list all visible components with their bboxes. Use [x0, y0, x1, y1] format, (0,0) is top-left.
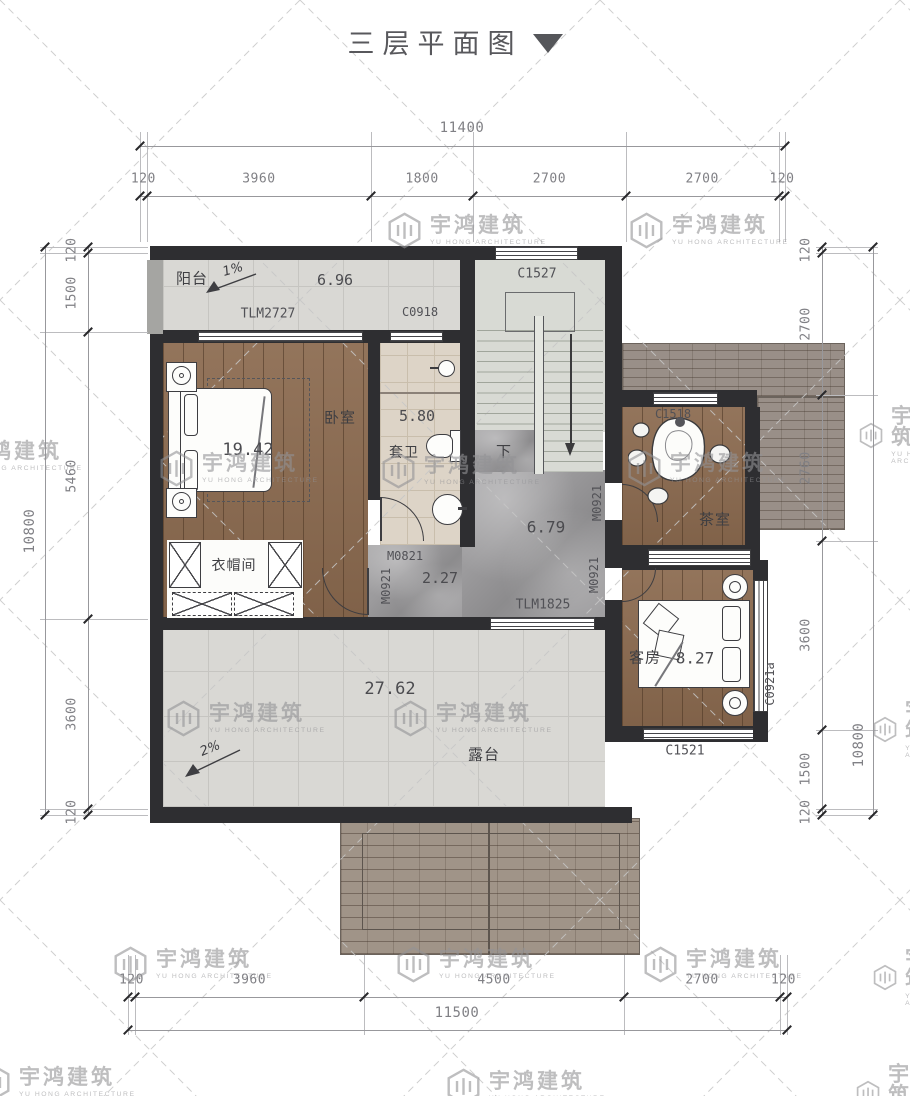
balcony-slope-arrow: 1%	[200, 264, 262, 298]
witness-line	[816, 253, 878, 254]
dim-segment-label: 120	[65, 799, 80, 824]
guest-room-area: 8.27	[676, 649, 715, 668]
dim-segment-label: 4500	[477, 973, 510, 988]
c1518-label: C1518	[655, 407, 691, 421]
witness-line	[816, 730, 878, 731]
watermark-en: YU HONG ARCHITECTURE	[430, 239, 546, 246]
dim-segment-label: 120	[799, 799, 814, 824]
dim-segment-label: 1500	[65, 276, 80, 309]
cloakroom-label: 衣帽间	[212, 555, 257, 575]
nightstand-lamp-2-dot	[179, 499, 184, 504]
bedroom-label: 卧室	[324, 407, 356, 428]
tea-table-set	[628, 410, 738, 510]
wall-guest-right-bottom	[753, 712, 768, 742]
witness-line	[40, 247, 148, 248]
terrace-slope-arrow: 2%	[178, 740, 248, 782]
c0921a-label: C0921a	[763, 662, 777, 705]
tlm1825-label: TLM1825	[516, 598, 571, 613]
door-tlm2727	[198, 331, 363, 342]
witness-line	[147, 132, 148, 242]
dim-segment-label: 2700	[686, 172, 719, 187]
bedroom-door-leaf	[367, 568, 369, 615]
balcony-area: 6.96	[317, 271, 353, 289]
corridor-area: 2.27	[422, 569, 458, 587]
witness-line	[473, 132, 474, 242]
wall-bedroom-bottom-right	[595, 617, 622, 630]
roof-right-top	[622, 343, 845, 397]
watermark: 宇鸿建筑 YU HONG ARCHITECTURE	[858, 406, 910, 465]
dim-segment-label: 120	[770, 172, 795, 187]
guest-room-label: 客房	[629, 647, 661, 668]
dim-overall-label: 10800	[22, 509, 38, 554]
dim-line	[140, 146, 785, 147]
dim-overall-label: 11400	[440, 120, 485, 136]
witness-line	[40, 332, 148, 333]
dim-segment-label: 5460	[65, 459, 80, 492]
dim-segment-label: 3600	[65, 697, 80, 730]
bedroom-area: 19.42	[222, 440, 273, 460]
dim-segment-label: 2700	[799, 308, 814, 341]
balcony-parapet	[147, 260, 163, 334]
dim-segment-label: 120	[119, 973, 144, 988]
dim-line	[128, 1030, 787, 1031]
watermark-cn: 宇鸿建筑	[905, 700, 910, 742]
triangle-down-icon	[533, 34, 563, 53]
watermark-cn: 宇鸿建筑	[430, 215, 546, 236]
watermark-cn: 宇鸿建筑	[156, 949, 272, 970]
ensuite-door-leaf	[380, 497, 382, 541]
watermark-cn: 宇鸿建筑	[891, 406, 910, 448]
watermark: 宇鸿建筑 YU HONG ARCHITECTURE	[445, 1068, 605, 1096]
dim-line	[128, 997, 787, 998]
wall-terrace-bottom	[150, 807, 632, 823]
watermark-en: YU HONG ARCHITECTURE	[905, 745, 910, 759]
shower-partition-line	[380, 392, 460, 394]
svg-text:2%: 2%	[198, 738, 223, 760]
window-c1521	[643, 728, 757, 740]
watermark-en: YU HONG ARCHITECTURE	[19, 1091, 135, 1096]
dim-line	[140, 196, 785, 197]
bed-headboard	[168, 386, 181, 494]
watermark-cn: 宇鸿建筑	[489, 1071, 605, 1092]
dim-segment-label: 3960	[242, 172, 275, 187]
hall-area: 6.79	[527, 518, 566, 537]
dim-overall-label: 11500	[435, 1005, 480, 1021]
watermark: 宇鸿建筑 YU HONG ARCHITECTURE	[386, 212, 546, 249]
roof-bottom-ridge	[362, 833, 620, 930]
dim-segment-label: 2760	[799, 451, 814, 484]
roof-bottom-ridge-line	[488, 818, 490, 955]
stairs-down-label: 下	[496, 441, 512, 462]
dim-segment-label: 3960	[233, 973, 266, 988]
watermark-cn: 宇鸿建筑	[672, 215, 788, 236]
dim-line	[45, 247, 46, 815]
terrace-label: 露台	[468, 744, 500, 765]
wardrobe-box-2	[268, 542, 302, 588]
dim-overall-label: 10800	[851, 723, 867, 768]
window-c0918	[390, 331, 443, 342]
guest-bed-pillow-2	[722, 647, 741, 682]
guest-stand-2-inner	[729, 697, 741, 709]
wall-left-upper	[150, 334, 163, 627]
terrace-area: 27.62	[364, 679, 415, 699]
yuhong-logo-icon	[628, 212, 665, 249]
nightstand-lamp-1-dot	[179, 373, 184, 378]
c1527-label: C1527	[517, 267, 556, 282]
yuhong-logo-icon	[386, 212, 423, 249]
yuhong-logo-icon	[858, 417, 884, 454]
witness-line	[785, 132, 786, 242]
watermark-cn: 宇鸿建筑	[686, 949, 802, 970]
witness-line	[40, 809, 148, 810]
wall-tea-right	[745, 407, 760, 560]
yuhong-logo-icon	[642, 946, 679, 983]
dim-segment-label: 2700	[685, 973, 718, 988]
window-c1518	[653, 392, 718, 405]
dim-segment-label: 120	[131, 172, 156, 187]
witness-line	[816, 395, 878, 396]
dim-segment-label: 120	[65, 238, 80, 263]
wardrobe-box-1	[169, 542, 201, 588]
witness-line	[140, 132, 141, 242]
watermark: 宇鸿建筑 YU HONG ARCHITECTURE	[628, 212, 788, 249]
wall-stair-right	[605, 260, 622, 483]
shower-arm	[430, 367, 439, 369]
page-title-text: 三层平面图	[348, 22, 523, 61]
witness-line	[40, 815, 148, 816]
hall-floor	[462, 470, 605, 617]
page-title: 三层平面图	[0, 22, 910, 61]
wall-bedroom-bottom	[150, 617, 490, 630]
watermark-cn: 宇鸿建筑	[888, 1064, 910, 1096]
yuhong-logo-icon	[0, 1064, 12, 1096]
ensuite-label: 套卫	[389, 442, 419, 462]
witness-line	[40, 253, 148, 254]
stair-rail	[534, 316, 544, 474]
c0918-label: C0918	[402, 305, 438, 319]
m0921-label-tea: M0921	[590, 485, 604, 521]
yuhong-logo-icon	[872, 959, 898, 996]
dim-segment-label: 120	[799, 238, 814, 263]
m0821-label: M0821	[387, 549, 423, 563]
watermark-en: YU HONG ARCHITECTURE	[891, 451, 910, 465]
wall-left-lower	[150, 630, 163, 823]
witness-line	[816, 541, 878, 542]
window-c1527	[495, 246, 578, 260]
m0921-label-corridor: M0921	[379, 568, 393, 604]
ensuite-area: 5.80	[399, 407, 435, 425]
wardrobe-box-4	[234, 592, 294, 616]
bed-pillow-1	[184, 394, 198, 436]
dim-segment-label: 1800	[405, 172, 438, 187]
watermark-en: YU HONG ARCHITECTURE	[672, 239, 788, 246]
m0921-label-guest: M0921	[587, 557, 601, 593]
watermark-cn: 宇鸿建筑	[905, 948, 910, 990]
toilet-bowl	[426, 434, 453, 458]
yuhong-logo-icon	[445, 1068, 482, 1096]
door-tlm1825	[490, 617, 595, 630]
wall-guest-right-top	[753, 560, 768, 580]
floor-plan-sheet: 三层平面图	[0, 0, 910, 1096]
witness-line	[626, 132, 627, 242]
shower-head	[438, 360, 455, 377]
guest-stand-1-inner	[729, 581, 741, 593]
watermark: 宇鸿建筑 YU HONG ARCHITECTURE	[0, 1064, 135, 1096]
tlm2727-label: TLM2727	[241, 307, 296, 322]
watermark: 宇鸿建筑 YU HONG ARCHITECTURE	[855, 1064, 910, 1096]
c1521-label: C1521	[665, 744, 704, 759]
witness-line	[371, 132, 372, 242]
dim-segment-label: 1500	[799, 753, 814, 786]
dim-segment-label: 3600	[799, 619, 814, 652]
stair-direction-line	[570, 334, 572, 444]
dim-line	[873, 247, 874, 815]
stair-direction-arrowhead	[565, 443, 575, 456]
window-seat-tea-guest	[648, 549, 751, 566]
yuhong-logo-icon	[855, 1075, 881, 1096]
wall-hall-right-mid	[605, 520, 622, 568]
tea-room-label: 茶室	[699, 509, 731, 530]
wardrobe-box-3	[172, 592, 232, 616]
dim-segment-label: 120	[771, 973, 796, 988]
guest-bed-pillow-1	[722, 606, 741, 641]
watermark: 宇鸿建筑 YU HONG ARCHITECTURE	[872, 948, 910, 1007]
bed-pillow-2	[184, 450, 198, 492]
wall-ensuite-left	[368, 342, 380, 500]
dim-segment-label: 2700	[533, 172, 566, 187]
sink-tap	[458, 507, 467, 510]
witness-line	[40, 619, 148, 620]
watermark-en: YU HONG ARCHITECTURE	[905, 993, 910, 1007]
watermark-cn: 宇鸿建筑	[19, 1067, 135, 1088]
